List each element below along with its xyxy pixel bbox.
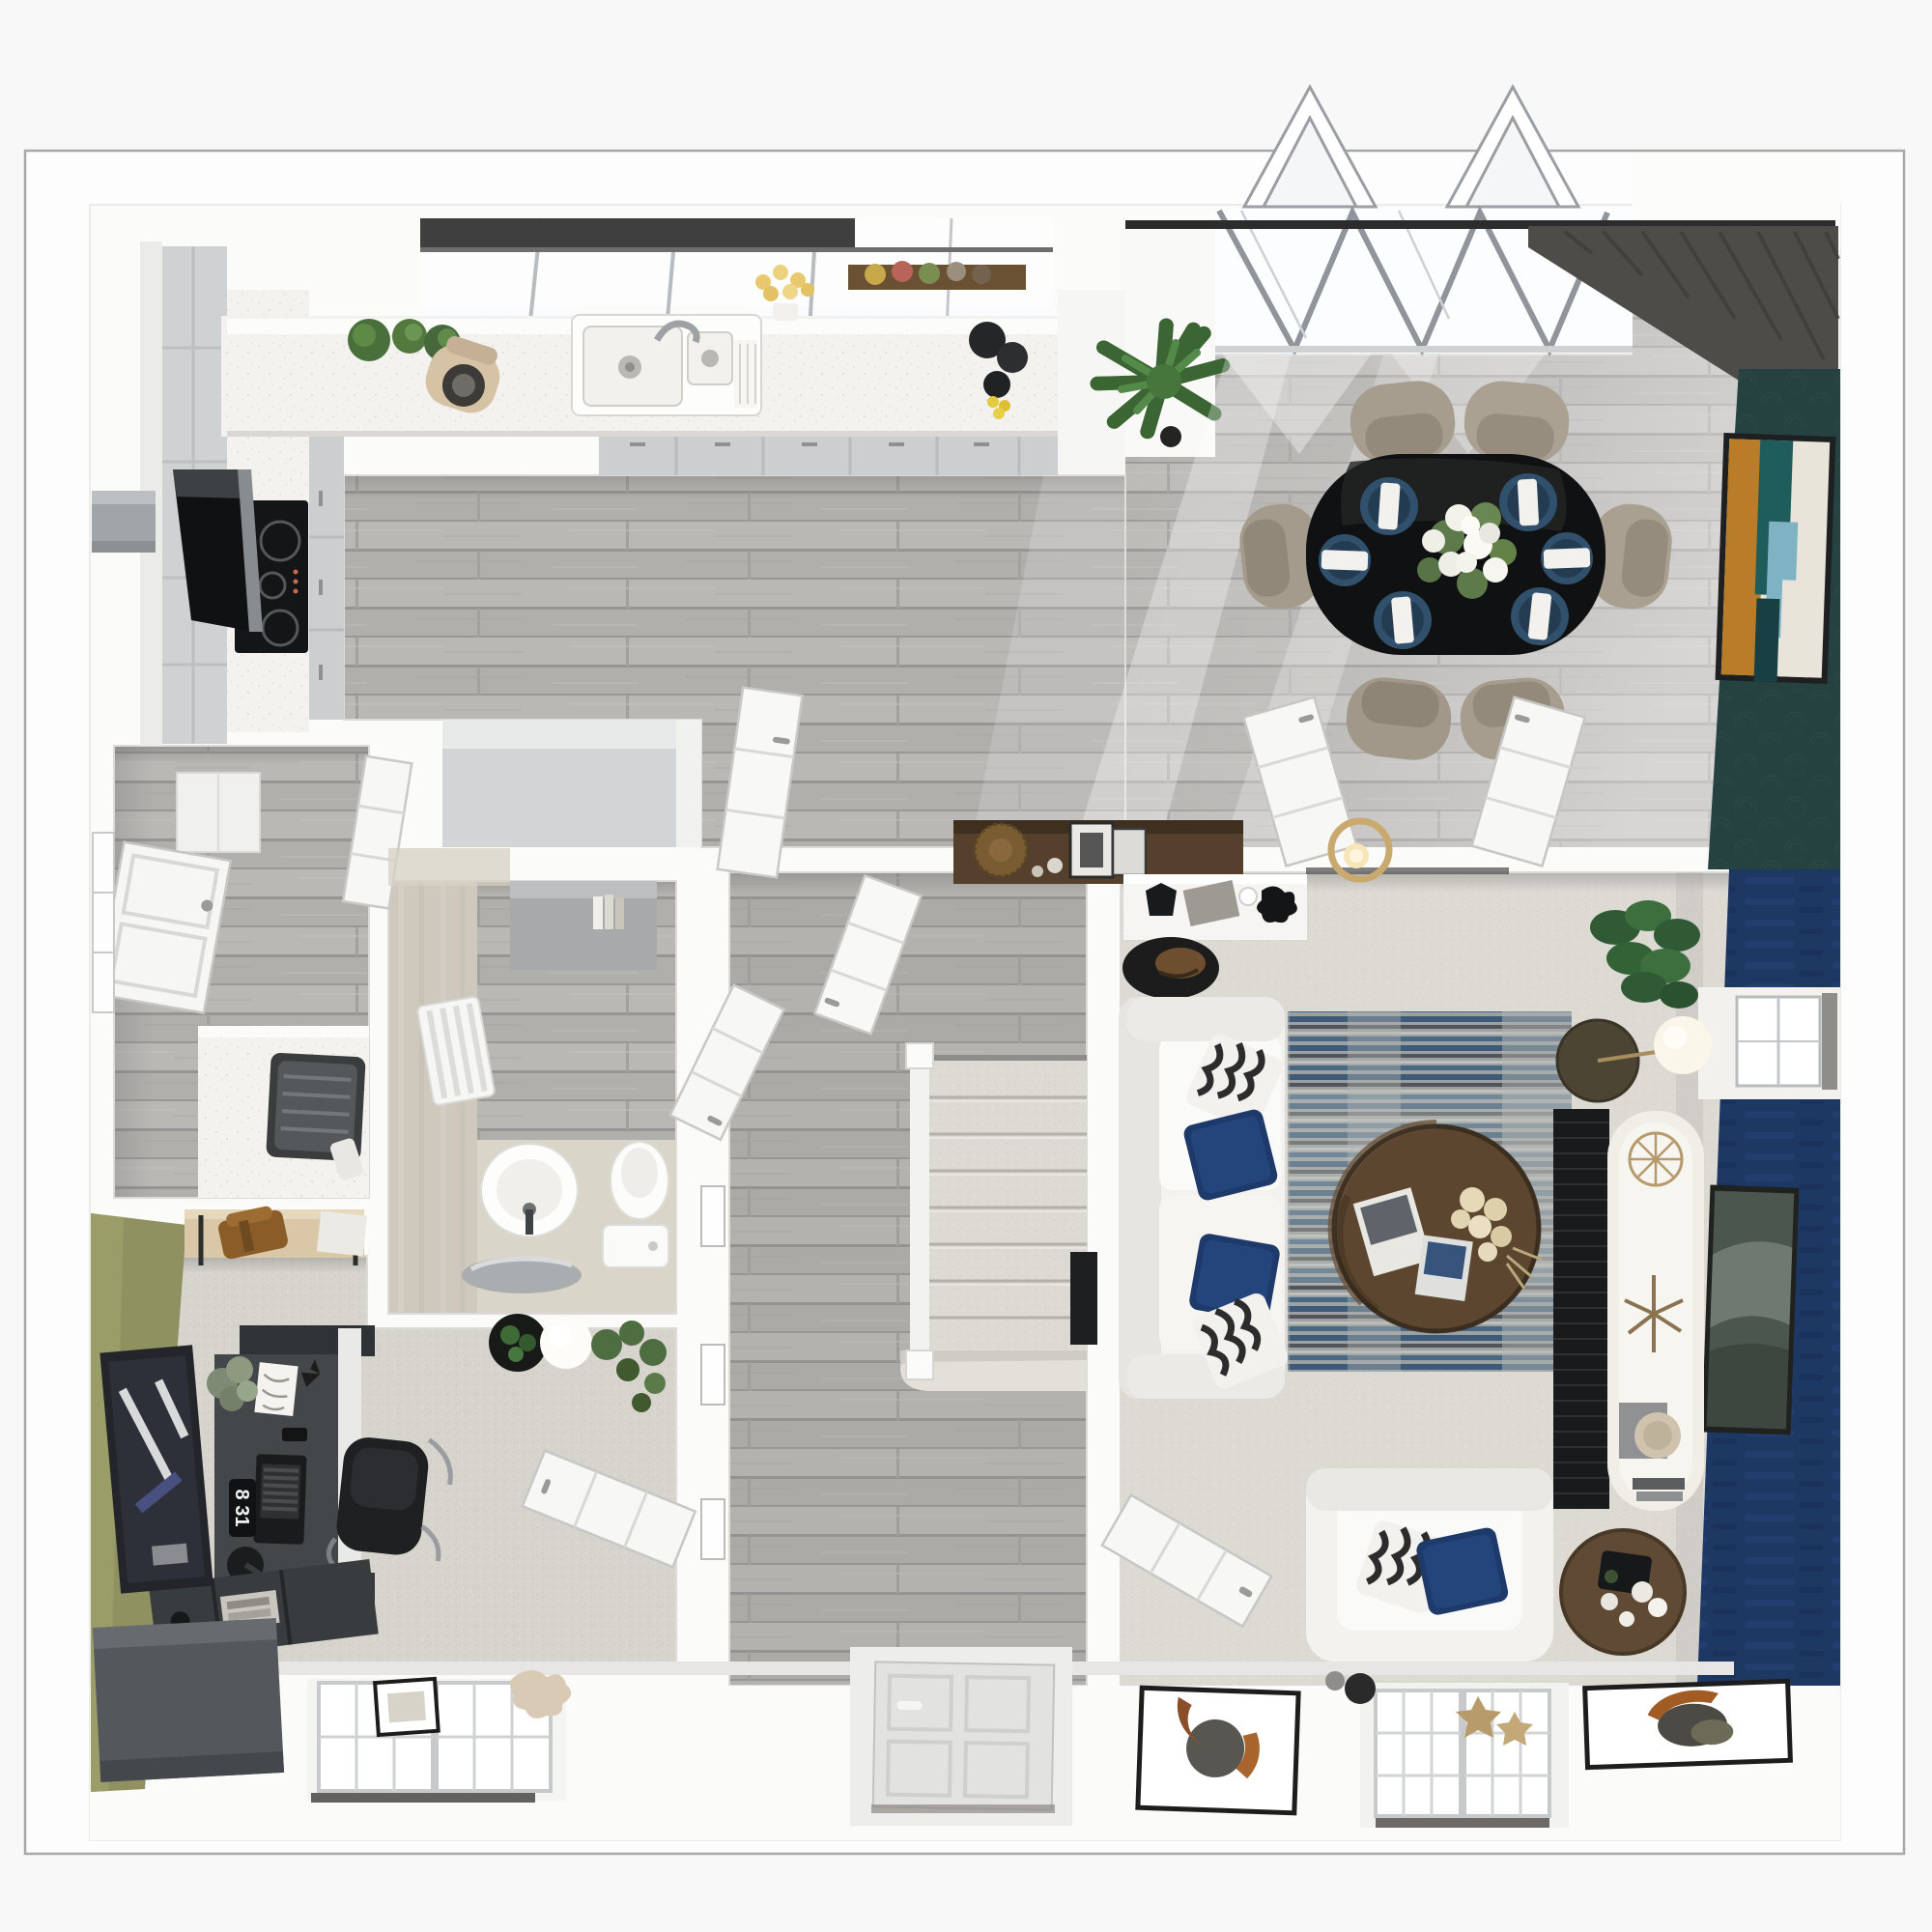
- svg-text:8 31: 8 31: [231, 1490, 252, 1527]
